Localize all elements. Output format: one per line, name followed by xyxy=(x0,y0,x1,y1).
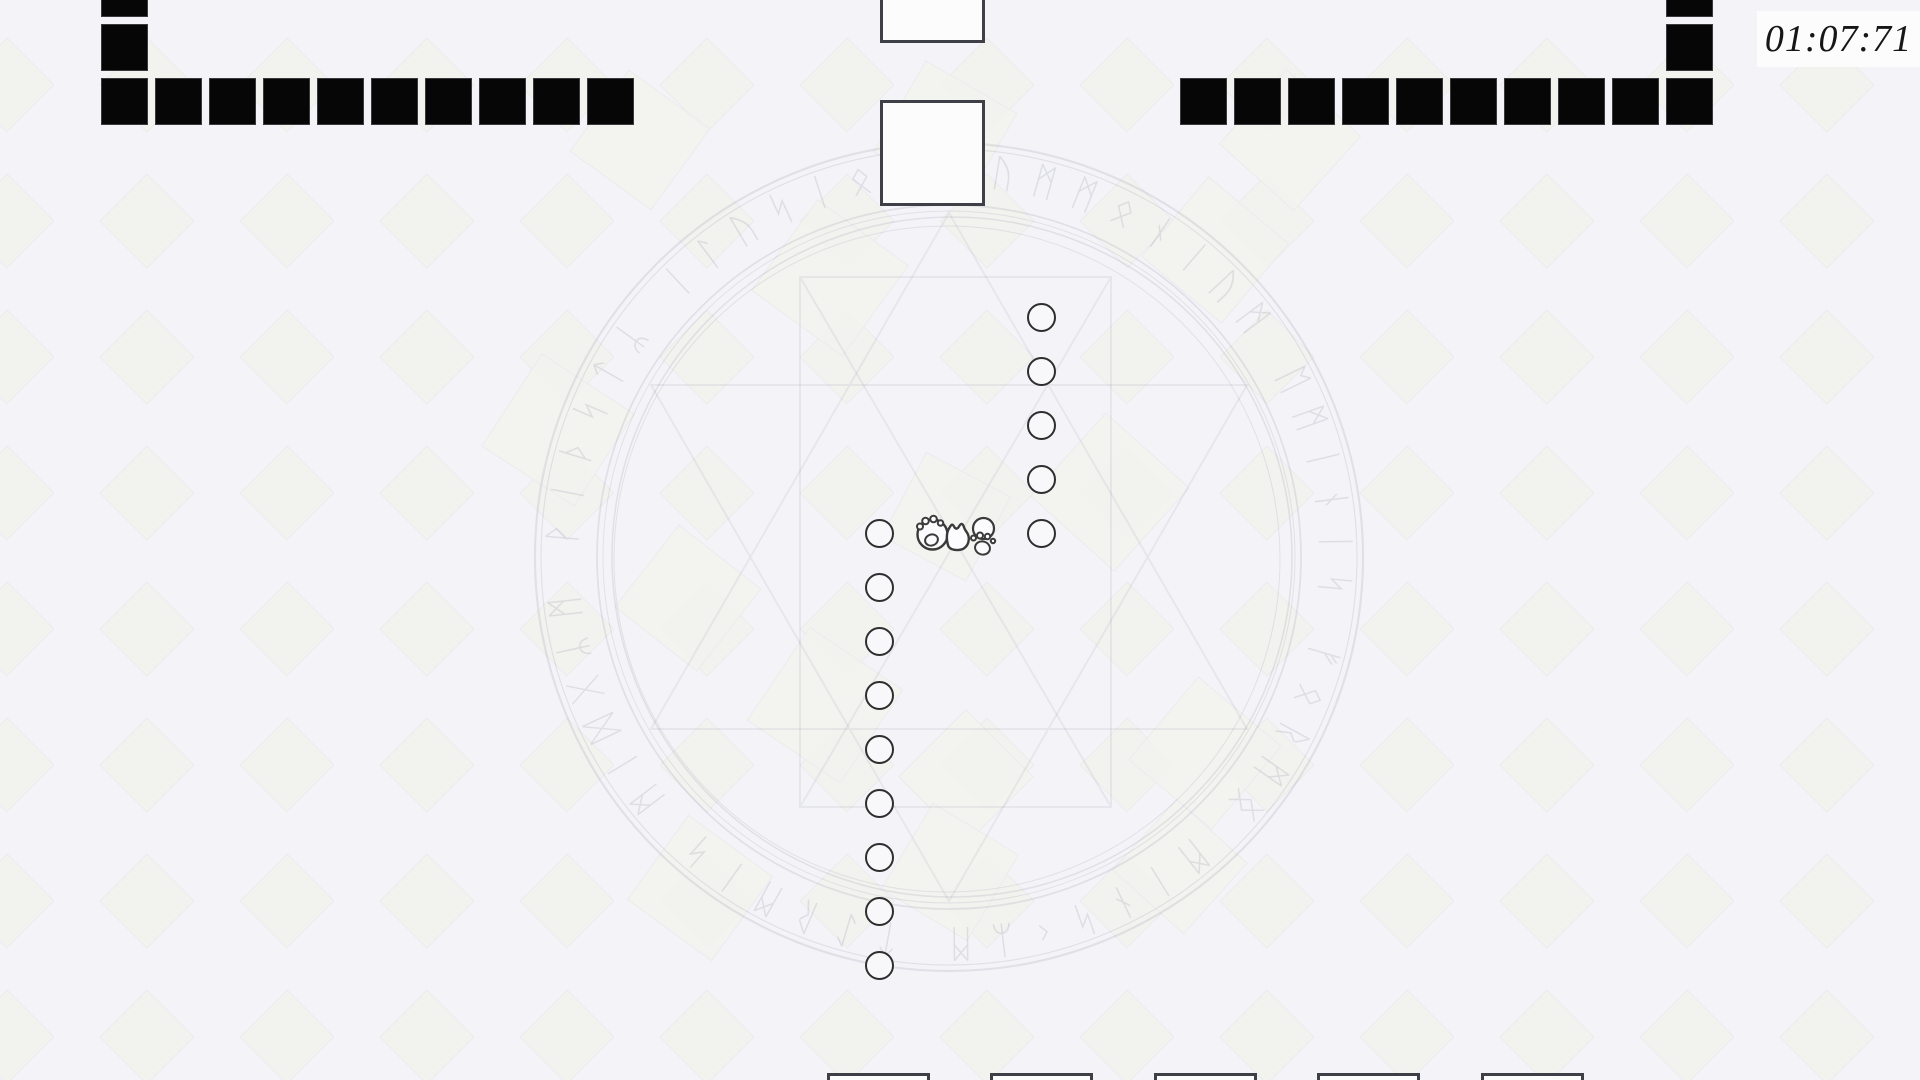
snake-circle xyxy=(865,789,894,818)
cat-paws-sprite xyxy=(905,505,1015,565)
snake-circle xyxy=(1027,411,1056,440)
wall-block xyxy=(1666,24,1713,71)
wall-block xyxy=(101,24,148,71)
snake-circle xyxy=(865,573,894,602)
outline-box xyxy=(1154,1073,1257,1080)
outline-box xyxy=(880,100,985,206)
snake-circle xyxy=(865,681,894,710)
wall-block xyxy=(317,78,364,125)
wall-block xyxy=(209,78,256,125)
wall-block xyxy=(1558,78,1605,125)
wall-block xyxy=(587,78,634,125)
wall-block xyxy=(101,0,148,17)
timer: 01:07:71 xyxy=(1757,11,1920,67)
outline-box xyxy=(827,1073,930,1080)
outline-box xyxy=(990,1073,1093,1080)
wall-block xyxy=(1396,78,1443,125)
snake-circle xyxy=(865,843,894,872)
wall-block xyxy=(1234,78,1281,125)
wall-block xyxy=(371,78,418,125)
wall-block xyxy=(1288,78,1335,125)
wall-block xyxy=(479,78,526,125)
playfield[interactable] xyxy=(0,0,1920,1080)
wall-block xyxy=(1612,78,1659,125)
wall-block xyxy=(425,78,472,125)
outline-box xyxy=(1317,1073,1420,1080)
outline-box xyxy=(1481,1073,1584,1080)
wall-block xyxy=(1180,78,1227,125)
snake-circle xyxy=(865,951,894,980)
game-screen: ᛋᚢᛗᛗᛟᚾᛁᚢᛗ ᛖᛗᛁᚾᛁᛋ ᚠᛟᚱᛗᛝ ᛗᛁᚾᛋᚲᛦᛗ ᛏᛇᚱᛗᛁᛋ ᛗᛁ… xyxy=(0,0,1920,1080)
wall-block xyxy=(101,78,148,125)
wall-block xyxy=(1666,0,1713,17)
wall-block xyxy=(1342,78,1389,125)
snake-circle xyxy=(1027,357,1056,386)
snake-circle xyxy=(865,627,894,656)
wall-block xyxy=(533,78,580,125)
wall-block xyxy=(263,78,310,125)
snake-circle xyxy=(1027,303,1056,332)
outline-box xyxy=(880,0,985,43)
wall-block xyxy=(1450,78,1497,125)
snake-circle xyxy=(865,897,894,926)
snake-circle xyxy=(865,519,894,548)
snake-circle xyxy=(1027,465,1056,494)
wall-block xyxy=(1666,78,1713,125)
snake-circle xyxy=(865,735,894,764)
snake-circle xyxy=(1027,519,1056,548)
wall-block xyxy=(1504,78,1551,125)
wall-block xyxy=(155,78,202,125)
